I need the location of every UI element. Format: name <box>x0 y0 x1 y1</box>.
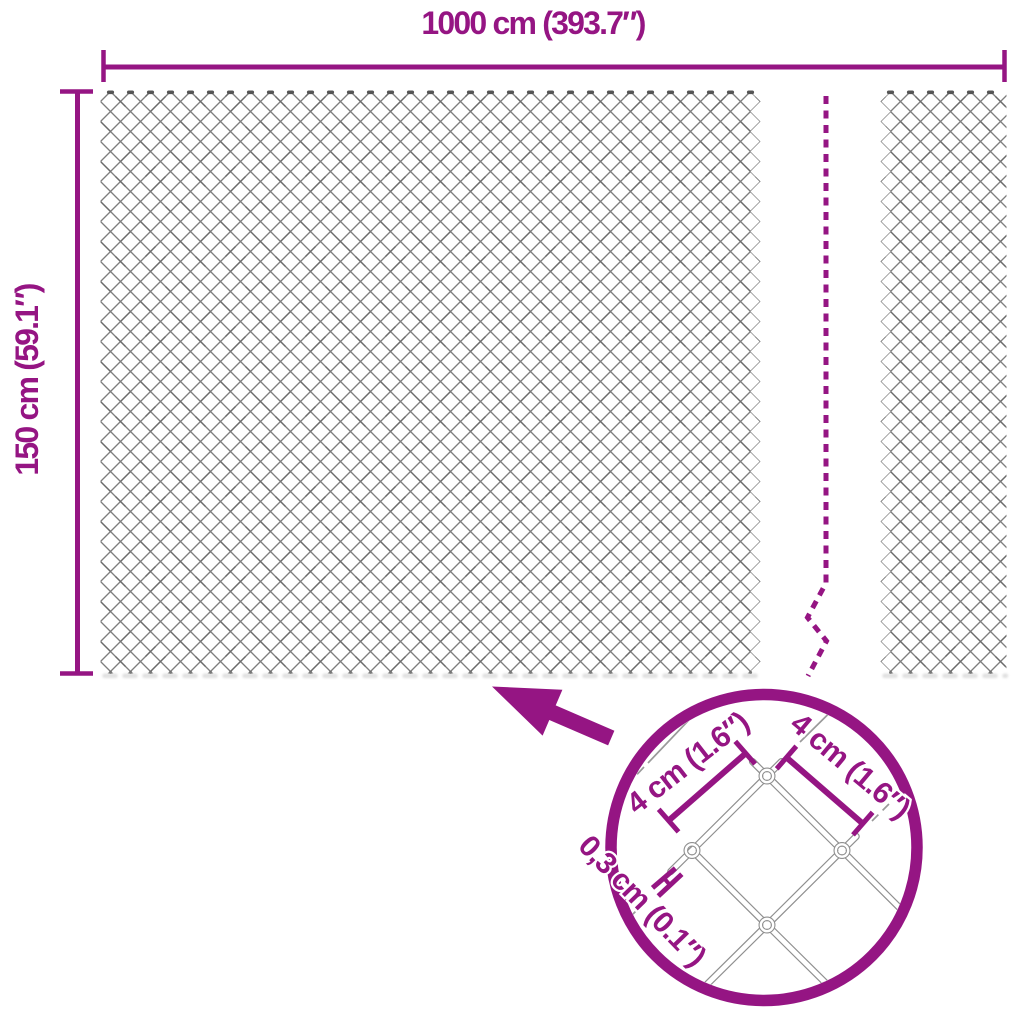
svg-text:150 cm (59.1″): 150 cm (59.1″) <box>9 283 45 475</box>
svg-text:1000 cm (393.7″): 1000 cm (393.7″) <box>421 5 645 41</box>
